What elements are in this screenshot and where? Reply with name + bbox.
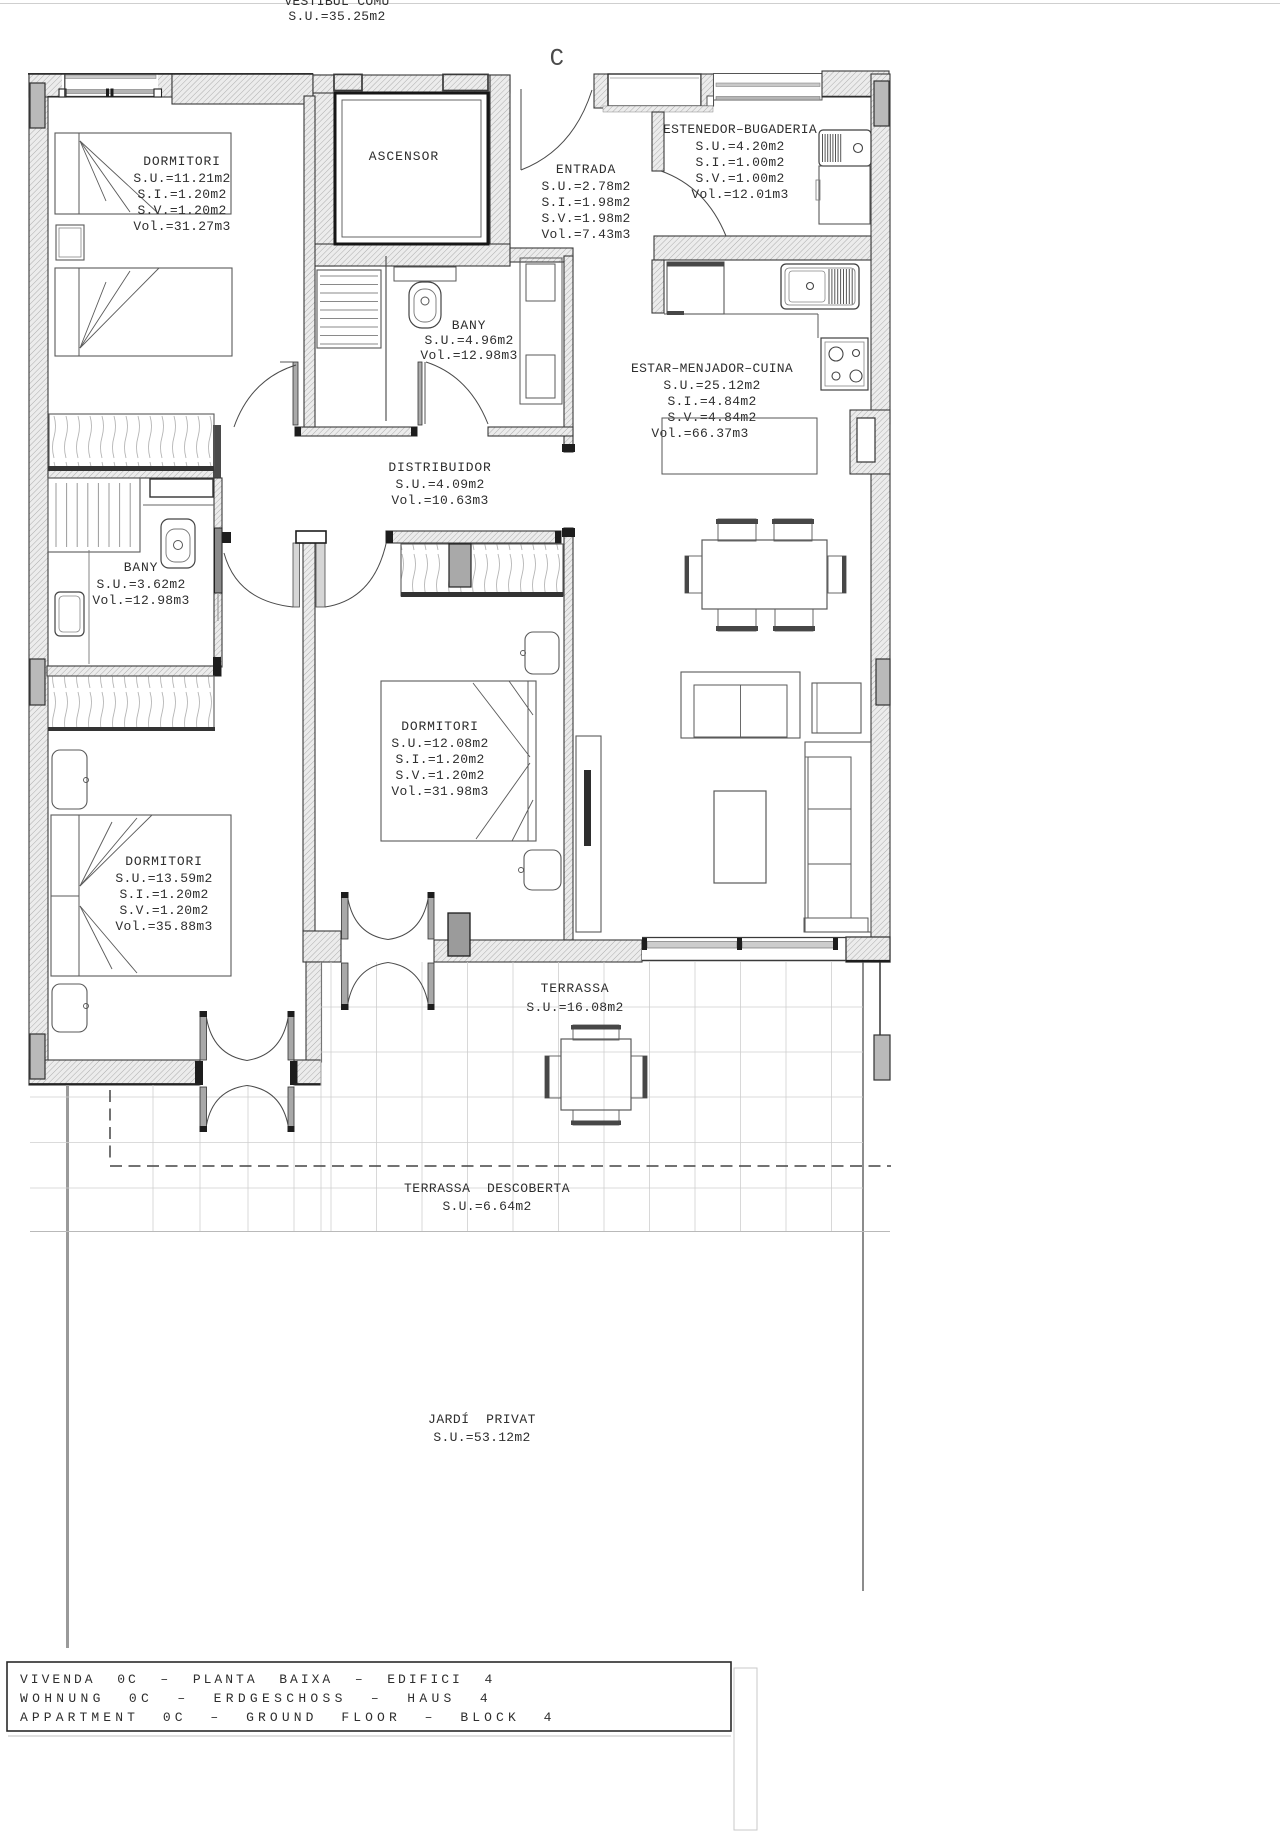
svg-text:DORMITORI: DORMITORI [401, 719, 478, 734]
svg-text:S.U.=25.12m2: S.U.=25.12m2 [663, 378, 760, 393]
svg-text:Vol.=7.43m3: Vol.=7.43m3 [541, 227, 630, 242]
svg-text:C: C [550, 46, 565, 73]
svg-text:APPARTMENT 0C – GROUND FLO: APPARTMENT 0C – GROUND FLOOR – BLOCK 4 [20, 1710, 556, 1725]
svg-text:S.I.=1.20m2: S.I.=1.20m2 [119, 887, 208, 902]
svg-text:VIVENDA 0C – PLANTA BAIXA: VIVENDA 0C – PLANTA BAIXA – EDIFICI 4 [20, 1672, 495, 1687]
svg-text:ENTRADA: ENTRADA [556, 162, 616, 177]
svg-text:TERRASSA: TERRASSA [541, 981, 610, 996]
svg-text:VESTIBUL COMU: VESTIBUL COMU [284, 0, 389, 9]
svg-text:S.U.=12.08m2: S.U.=12.08m2 [391, 736, 488, 751]
svg-text:WOHNUNG 0C – ERDGESCHOSS –: WOHNUNG 0C – ERDGESCHOSS – HAUS 4 [20, 1691, 492, 1706]
svg-text:ESTENEDOR–BUGADERIA: ESTENEDOR–BUGADERIA [663, 122, 817, 137]
svg-text:S.V.=1.00m2: S.V.=1.00m2 [695, 171, 784, 186]
svg-text:S.I.=1.20m2: S.I.=1.20m2 [137, 187, 226, 202]
svg-text:S.U.=4.96m2: S.U.=4.96m2 [424, 333, 513, 348]
svg-text:S.I.=1.98m2: S.I.=1.98m2 [541, 195, 630, 210]
svg-text:S.U.=6.64m2: S.U.=6.64m2 [442, 1199, 531, 1214]
svg-text:ESTAR–MENJADOR–CUINA: ESTAR–MENJADOR–CUINA [631, 361, 793, 376]
svg-text:S.U.=4.20m2: S.U.=4.20m2 [695, 139, 784, 154]
svg-text:Vol.=31.27m3: Vol.=31.27m3 [133, 219, 230, 234]
svg-text:Vol.=66.37m3: Vol.=66.37m3 [651, 426, 748, 441]
svg-text:S.I.=4.84m2: S.I.=4.84m2 [667, 394, 756, 409]
svg-text:JARDÍ PRIVAT: JARDÍ PRIVAT [428, 1412, 536, 1427]
svg-text:S.V.=1.20m2: S.V.=1.20m2 [395, 768, 484, 783]
svg-text:Vol.=35.88m3: Vol.=35.88m3 [115, 919, 212, 934]
svg-text:DORMITORI: DORMITORI [125, 854, 202, 869]
svg-text:S.V.=1.20m2: S.V.=1.20m2 [119, 903, 208, 918]
svg-text:S.U.=16.08m2: S.U.=16.08m2 [526, 1000, 623, 1015]
svg-text:TERRASSA DESCOBERTA: TERRASSA DESCOBERTA [404, 1181, 570, 1196]
svg-text:Vol.=12.98m3: Vol.=12.98m3 [420, 348, 517, 363]
svg-text:S.U.=11.21m2: S.U.=11.21m2 [133, 171, 230, 186]
svg-text:DISTRIBUIDOR: DISTRIBUIDOR [388, 460, 491, 475]
svg-text:Vol.=10.63m3: Vol.=10.63m3 [391, 493, 488, 508]
svg-text:DORMITORI: DORMITORI [143, 154, 220, 169]
svg-text:S.V.=1.20m2: S.V.=1.20m2 [137, 203, 226, 218]
svg-text:S.U.=35.25m2: S.U.=35.25m2 [288, 9, 385, 24]
svg-text:S.U.=3.62m2: S.U.=3.62m2 [96, 577, 185, 592]
svg-text:BANY: BANY [124, 560, 158, 575]
svg-text:ASCENSOR: ASCENSOR [369, 149, 439, 164]
svg-text:Vol.=31.98m3: Vol.=31.98m3 [391, 784, 488, 799]
svg-text:S.V.=1.98m2: S.V.=1.98m2 [541, 211, 630, 226]
svg-text:S.U.=2.78m2: S.U.=2.78m2 [541, 179, 630, 194]
svg-text:S.I.=1.20m2: S.I.=1.20m2 [395, 752, 484, 767]
svg-text:S.U.=4.09m2: S.U.=4.09m2 [395, 477, 484, 492]
svg-text:S.U.=53.12m2: S.U.=53.12m2 [433, 1430, 530, 1445]
svg-text:BANY: BANY [452, 318, 486, 333]
svg-text:S.U.=13.59m2: S.U.=13.59m2 [115, 871, 212, 886]
svg-text:Vol.=12.01m3: Vol.=12.01m3 [691, 187, 788, 202]
svg-text:S.I.=1.00m2: S.I.=1.00m2 [695, 155, 784, 170]
svg-text:Vol.=12.98m3: Vol.=12.98m3 [92, 593, 189, 608]
